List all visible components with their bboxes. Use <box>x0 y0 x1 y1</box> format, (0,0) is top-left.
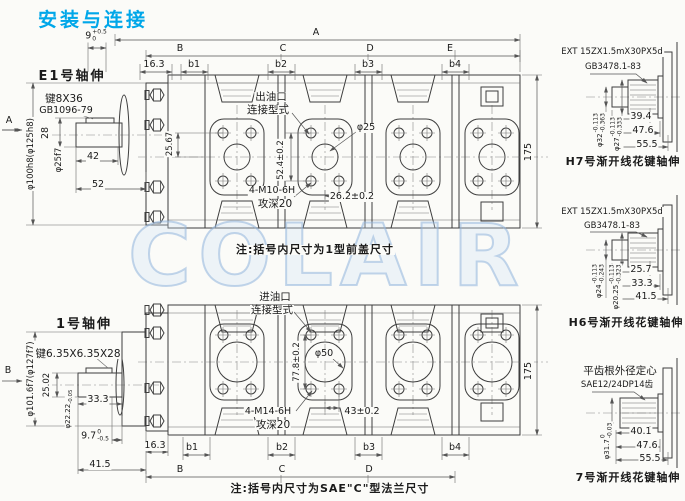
lower-415-label: 41.5 <box>88 460 111 470</box>
h7-dia2-label: φ27-0.113-0.333 <box>611 116 624 152</box>
outlet-dia-label: φ25 <box>356 123 376 133</box>
lower-flange-dia-label: φ101.6f7(φ127f7) <box>26 340 36 417</box>
upper-key-spec-line2: GB1096-79 <box>38 106 94 116</box>
s7-dim1-label: 40.1 <box>629 427 652 437</box>
upper-flange-dia-label: φ100h8(φ125h8) <box>26 117 36 191</box>
upper-bolt-v-label: 52.4±0.2 <box>276 139 286 181</box>
upper-bolt-h-label: 26.2±0.2 <box>329 192 375 202</box>
h7-dim1-label: 39.4 <box>629 112 652 122</box>
h7-caption: H7号渐开线花键轴伸 <box>565 157 682 167</box>
lower-bolt-h-label: 43±0.2 <box>343 407 380 417</box>
h6-dia1-label: φ24-0.113-0.243 <box>593 263 606 299</box>
upper-key-spec-line1: 键8X36 <box>44 94 84 104</box>
lower-b4-label: b4 <box>448 443 462 453</box>
lower-view-arrow-label: B <box>4 366 13 376</box>
upper-note: 注:括号内尺寸为1型前盖尺寸 <box>235 245 395 255</box>
upper-view-label: E1号轴伸 <box>38 72 107 82</box>
upper-shaft-len-label: 52 <box>91 180 105 190</box>
upper-thread-depth-label: 攻深20 <box>257 199 293 209</box>
drawing-canvas: .ln{stroke:#3e3e3e;fill:none;stroke-widt… <box>0 0 685 501</box>
lower-shaft-dia-label: φ22.22-0.05 <box>65 389 75 430</box>
h6-dim1-label: 25.7 <box>629 265 652 275</box>
upper-163-label: 16.3 <box>142 60 165 70</box>
lower-sec-d-label: D <box>364 465 373 475</box>
inlet-dia-label: φ50 <box>314 349 334 359</box>
lower-163-label: 16.3 <box>143 441 166 451</box>
upper-b3-label: b3 <box>361 60 375 70</box>
upper-view-arrow-label: A <box>5 116 14 126</box>
upper-shaft-dia-label: φ25f7 <box>54 147 64 174</box>
upper-2567-label: 25.67 <box>165 131 175 157</box>
h6-caption: H6号渐开线花键轴伸 <box>568 318 685 328</box>
s7-dim3-label: 55.5 <box>638 454 661 464</box>
overall-dim-label: A <box>312 28 321 38</box>
upper-height-label: 175 <box>524 142 534 162</box>
lower-thread-depth-label: 攻深20 <box>255 420 291 430</box>
s7-caption: 7号渐开线花键轴伸 <box>575 473 682 483</box>
lower-note: 注:括号内尺寸为SAE"C"型法兰尺寸 <box>230 484 431 494</box>
upper-sec-b-label: B <box>176 44 185 54</box>
s7-spec2: SAE12/24DP14齿 <box>580 380 654 390</box>
s7-dim2-label: 47.6 <box>635 441 658 451</box>
s7-spec1: 平齿根外径定心 <box>582 366 658 376</box>
upper-b4-label: b4 <box>448 60 462 70</box>
inlet-port-label2: 连接型式 <box>250 305 294 315</box>
lower-height-label: 175 <box>524 361 534 381</box>
h6-spec2: GB3478.1-83 <box>583 221 641 231</box>
lower-thread-spec-label: 4-M14-6H <box>244 407 292 417</box>
h7-spec2: GB3478.1-83 <box>584 62 642 72</box>
lower-sec-c-label: C <box>278 465 287 475</box>
h7-dim3-label: 55.5 <box>635 140 658 150</box>
outlet-port-label2: 连接型式 <box>246 105 290 115</box>
outlet-port-label1: 出油口 <box>254 92 288 102</box>
h6-dim2-label: 33.3 <box>630 279 653 289</box>
h7-dim2-label: 47.6 <box>631 126 654 136</box>
lower-bolt-v-label: 77.8±0.2 <box>292 341 302 383</box>
h7-spec1: EXT 15ZX1.5mX30PX5d <box>560 47 664 57</box>
lower-key-width-label: 25.02 <box>42 372 52 398</box>
upper-assembly-view <box>138 75 548 228</box>
upper-sec-c-label: C <box>279 44 288 54</box>
h6-dim3-label: 41.5 <box>634 292 657 302</box>
lower-sec-b-label: B <box>176 465 185 475</box>
lower-view-label: 1号轴伸 <box>55 320 113 330</box>
pilot-dim-label: 9+0.50 <box>84 30 108 43</box>
lower-b1-label: b1 <box>185 443 199 453</box>
lower-b2-label: b2 <box>275 443 289 453</box>
lower-step-label: 9.70-0.5 <box>80 430 110 443</box>
upper-b2-label: b2 <box>274 60 288 70</box>
lower-b3-label: b3 <box>362 443 376 453</box>
lower-shaft-len-label: 33.3 <box>86 395 109 405</box>
h6-spec1: EXT 15ZX1.5mX30PX5d <box>560 207 664 217</box>
upper-sec-d-label: D <box>365 44 374 54</box>
upper-b1-label: b1 <box>187 60 201 70</box>
upper-sec-e-label: E <box>446 44 454 54</box>
s7-dia1-label: φ31.70-0.03 <box>601 422 614 461</box>
h6-dia2-label: φ20.25-0.113-0.323 <box>610 263 623 310</box>
lower-key-spec: 键6.35X6.35X28 <box>34 349 121 359</box>
upper-thread-spec-label: 4-M10-6H <box>248 186 296 196</box>
h7-dia1-label: φ32-0.113-0.363 <box>594 112 607 148</box>
inlet-port-label1: 进油口 <box>258 292 292 302</box>
upper-key-width-label: 28 <box>41 126 51 140</box>
upper-key-len-label: 42 <box>86 152 100 162</box>
